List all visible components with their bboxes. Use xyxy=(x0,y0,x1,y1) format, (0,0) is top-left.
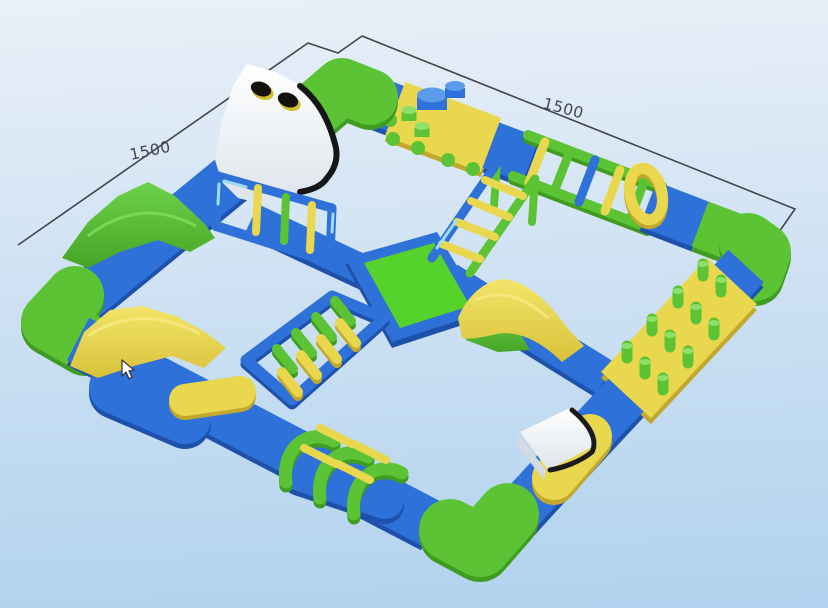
frame-post xyxy=(256,188,258,232)
float-log xyxy=(296,333,312,353)
corner-pad-east xyxy=(748,242,762,272)
blue-cylinder-small xyxy=(445,81,465,98)
corner-pad-south xyxy=(450,514,508,551)
frame-post xyxy=(284,197,286,241)
blue-cylinder-large xyxy=(417,88,447,111)
floating-log-bridge xyxy=(246,296,384,404)
ladder-rung xyxy=(457,222,495,237)
ladder-rung xyxy=(471,201,509,217)
frame-post xyxy=(310,205,312,250)
dimension-label-left: 1500 xyxy=(128,138,172,164)
dimension-label-right: 1500 xyxy=(541,94,586,122)
wave-slide xyxy=(458,279,584,362)
slide-hump-small xyxy=(185,392,240,400)
render-viewport[interactable]: 1500 1500 xyxy=(0,0,828,608)
float-log xyxy=(277,349,293,369)
log-bridge-frame xyxy=(246,296,384,400)
perimeter-edge-bottom-left xyxy=(70,306,432,529)
yellow-arch-ring xyxy=(625,165,667,227)
float-log xyxy=(316,317,332,337)
waterpark-render: 1500 1500 xyxy=(0,0,828,608)
green-arch-tunnel xyxy=(285,428,402,518)
